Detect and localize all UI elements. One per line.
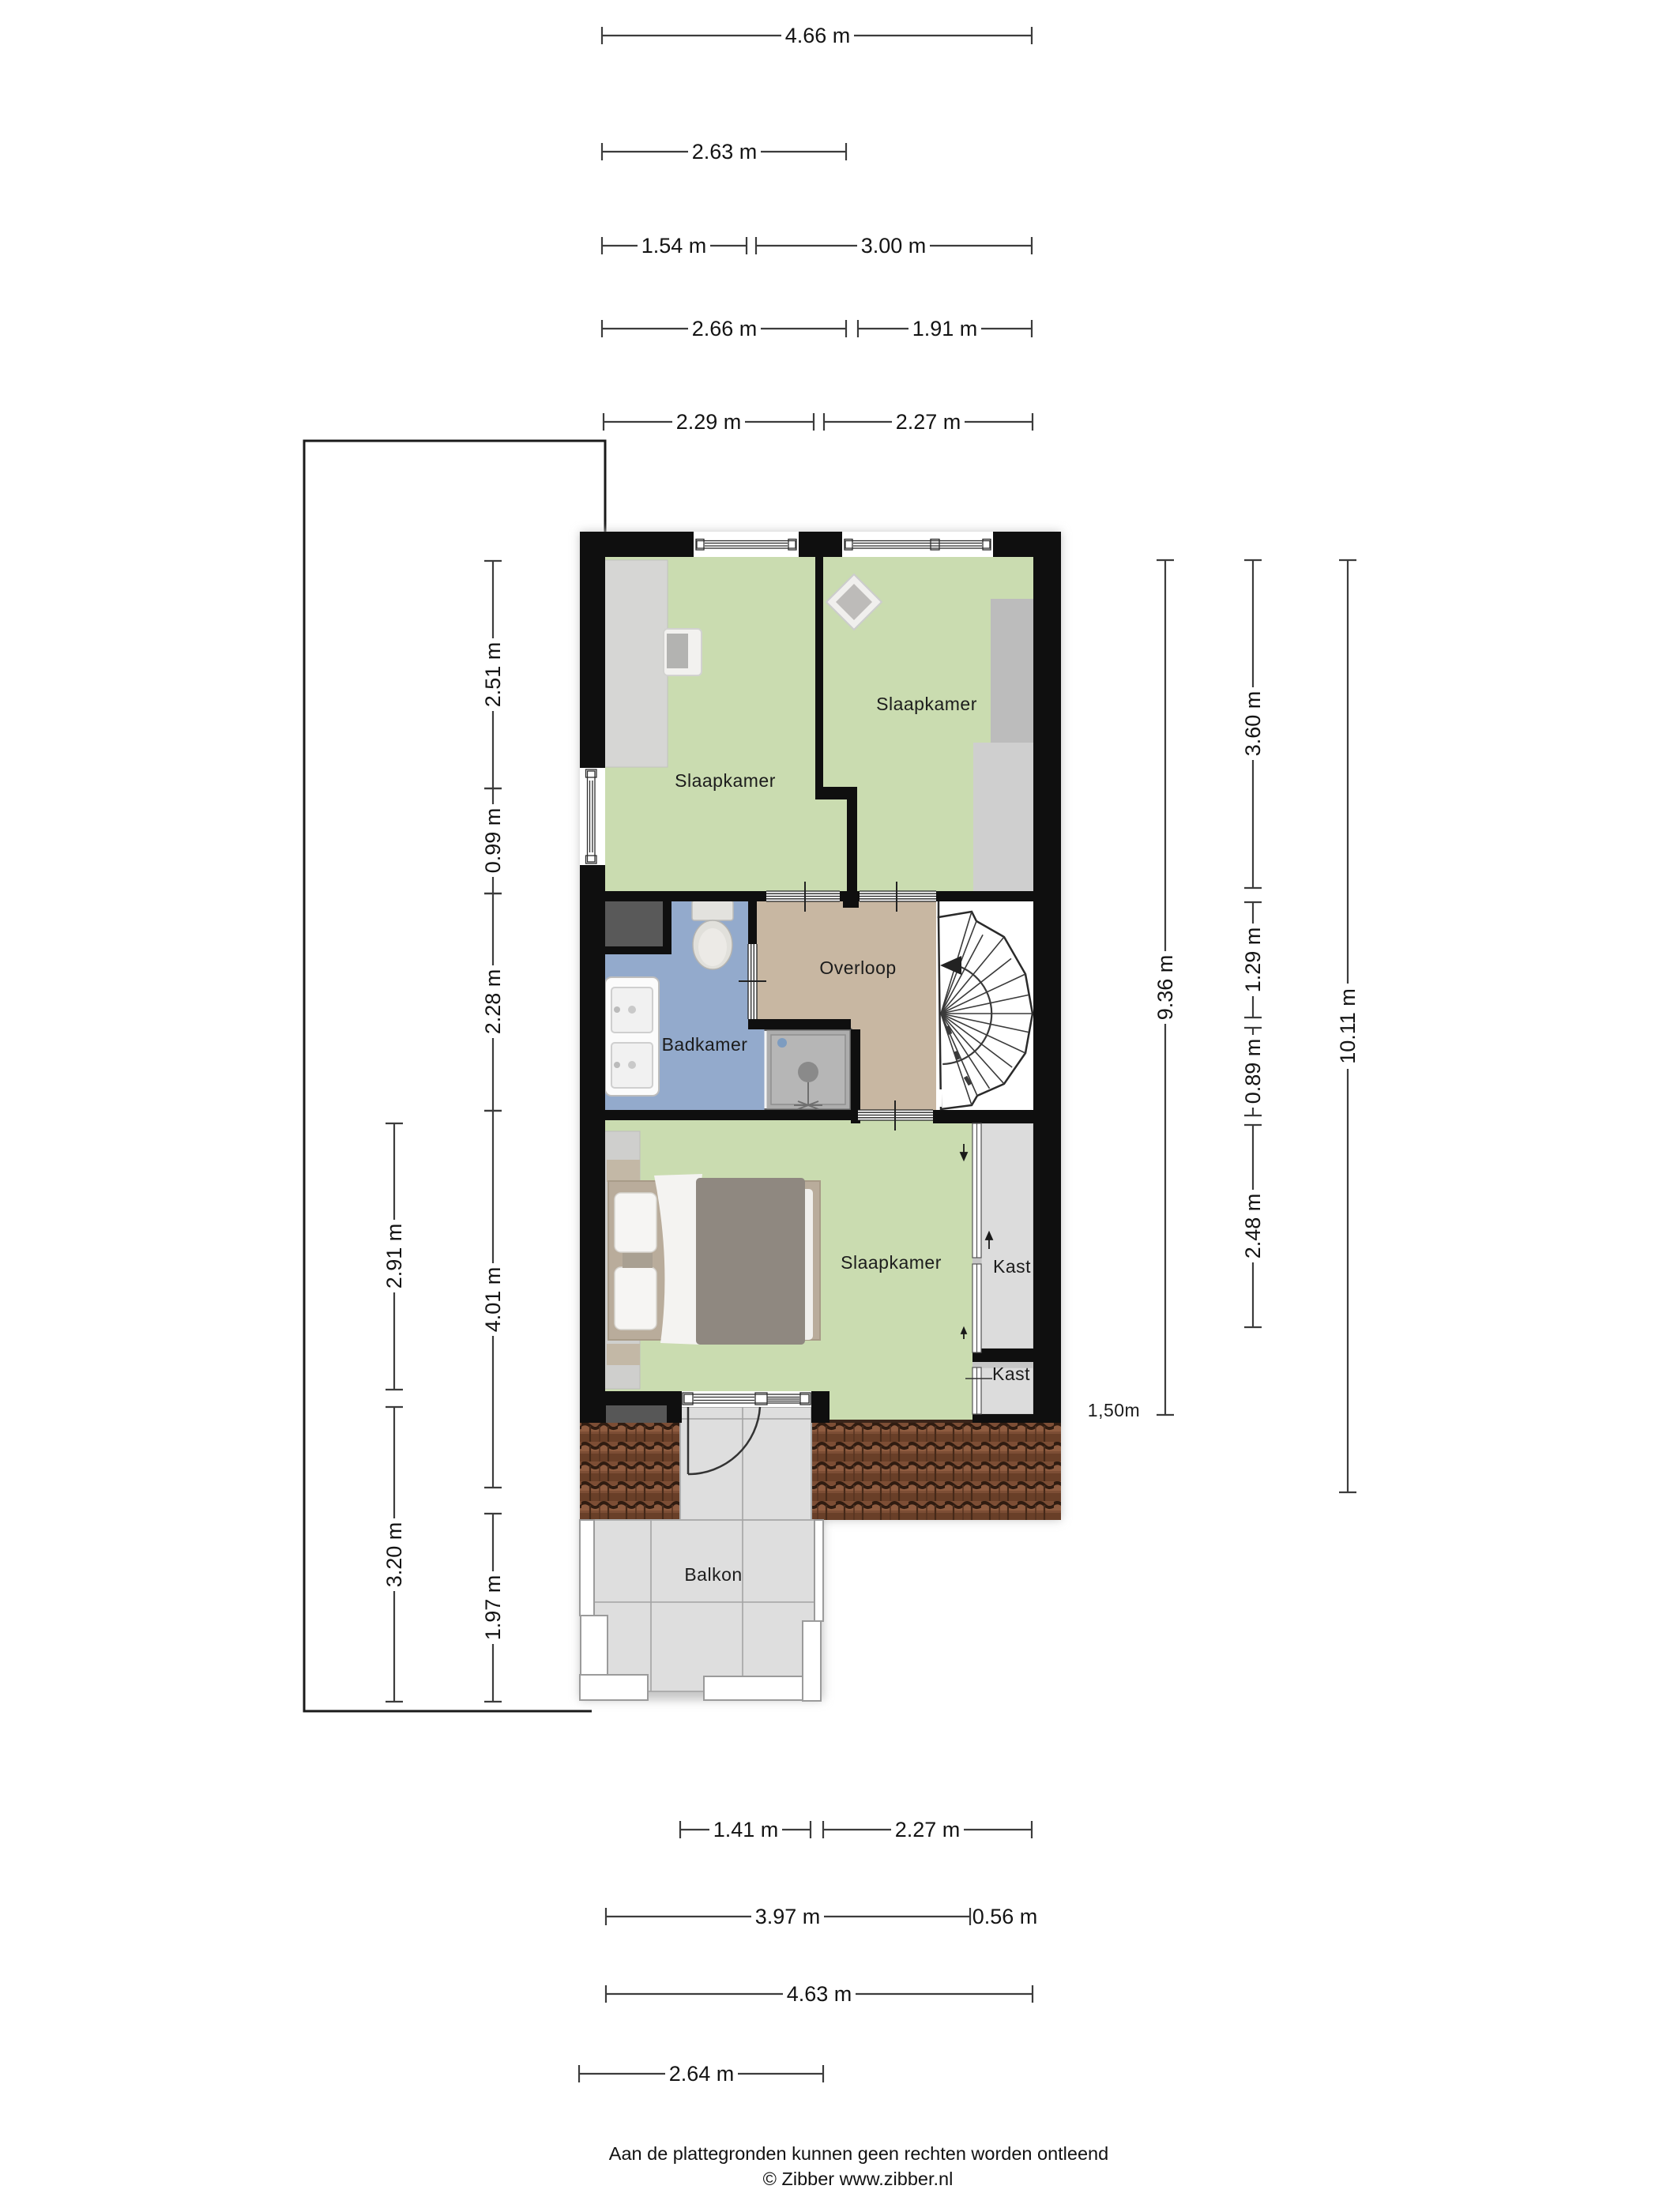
svg-text:1,50m: 1,50m xyxy=(1088,1400,1140,1420)
svg-text:2.27 m: 2.27 m xyxy=(895,1818,961,1841)
svg-text:3.60 m: 3.60 m xyxy=(1241,691,1265,757)
svg-text:Slaapkamer: Slaapkamer xyxy=(675,770,776,791)
svg-text:0.99 m: 0.99 m xyxy=(481,808,505,874)
svg-text:2.51 m: 2.51 m xyxy=(481,642,505,708)
svg-text:2.66 m: 2.66 m xyxy=(692,317,758,340)
svg-text:3.00 m: 3.00 m xyxy=(861,234,927,258)
svg-text:© Zibber www.zibber.nl: © Zibber www.zibber.nl xyxy=(763,2169,954,2189)
svg-text:2.63 m: 2.63 m xyxy=(692,140,758,164)
svg-text:2.48 m: 2.48 m xyxy=(1241,1194,1265,1259)
svg-text:0.89 m: 0.89 m xyxy=(1241,1039,1265,1104)
svg-text:Slaapkamer: Slaapkamer xyxy=(876,694,977,714)
svg-text:Aan de plattegronden kunnen ge: Aan de plattegronden kunnen geen rechten… xyxy=(609,2143,1108,2164)
svg-text:Overloop: Overloop xyxy=(819,957,896,978)
svg-text:1.54 m: 1.54 m xyxy=(641,234,707,258)
svg-text:2.91 m: 2.91 m xyxy=(382,1224,406,1289)
svg-text:9.36 m: 9.36 m xyxy=(1153,955,1177,1021)
svg-text:1.91 m: 1.91 m xyxy=(912,317,978,340)
svg-text:4.01 m: 4.01 m xyxy=(481,1267,505,1333)
svg-text:3.97 m: 3.97 m xyxy=(755,1905,821,1928)
svg-text:Kast: Kast xyxy=(992,1364,1030,1384)
svg-text:4.63 m: 4.63 m xyxy=(787,1982,852,2006)
svg-text:Badkamer: Badkamer xyxy=(662,1034,748,1055)
svg-text:1.41 m: 1.41 m xyxy=(713,1818,779,1841)
svg-text:10.11 m: 10.11 m xyxy=(1336,988,1360,1064)
svg-text:Balkon: Balkon xyxy=(684,1564,742,1585)
svg-text:4.66 m: 4.66 m xyxy=(785,24,851,47)
svg-text:2.28 m: 2.28 m xyxy=(481,969,505,1035)
svg-text:2.64 m: 2.64 m xyxy=(669,2062,735,2086)
svg-text:Slaapkamer: Slaapkamer xyxy=(841,1252,942,1273)
svg-text:1.29 m: 1.29 m xyxy=(1241,927,1265,993)
svg-text:1.97 m: 1.97 m xyxy=(481,1575,505,1641)
svg-text:3.20 m: 3.20 m xyxy=(382,1522,406,1588)
svg-text:Kast: Kast xyxy=(993,1256,1031,1277)
svg-text:2.29 m: 2.29 m xyxy=(676,410,742,434)
svg-text:0.56 m: 0.56 m xyxy=(972,1905,1038,1928)
svg-text:2.27 m: 2.27 m xyxy=(896,410,961,434)
